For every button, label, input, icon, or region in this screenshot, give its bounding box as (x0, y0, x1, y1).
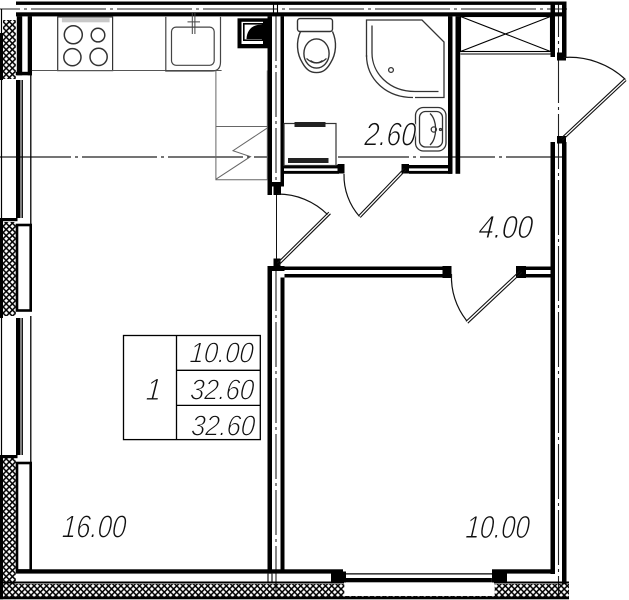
svg-text:2.60: 2.60 (363, 117, 418, 153)
svg-text:32.60: 32.60 (189, 373, 255, 406)
svg-text:10.00: 10.00 (189, 336, 255, 369)
svg-text:32.60: 32.60 (190, 409, 256, 442)
svg-text:10.00: 10.00 (464, 510, 531, 545)
svg-text:1: 1 (145, 374, 163, 408)
svg-text:4.00: 4.00 (477, 210, 534, 245)
svg-text:16.00: 16.00 (61, 510, 128, 545)
